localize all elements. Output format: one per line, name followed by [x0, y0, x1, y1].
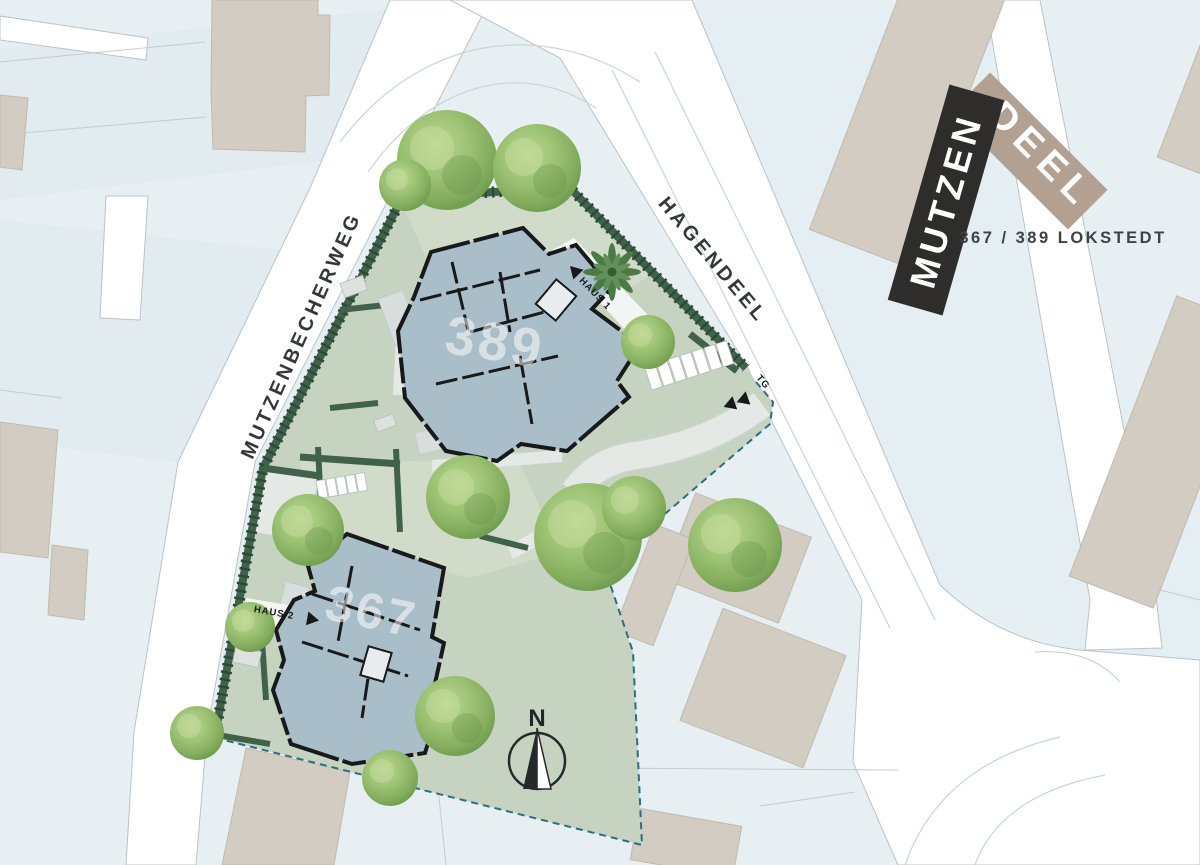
hedge [262, 640, 266, 700]
tree [493, 124, 581, 212]
tree [426, 455, 510, 539]
tree [621, 315, 675, 369]
neighbor-building [0, 422, 58, 558]
tree [602, 476, 666, 540]
tree [688, 498, 782, 592]
logo-subtitle: 367 / 389 LOKSTEDT [959, 229, 1166, 247]
tree [272, 494, 344, 566]
site-plan: 389 367 MUTZE [0, 0, 1200, 865]
tree [415, 676, 495, 756]
tree [170, 706, 224, 760]
tree [379, 159, 431, 211]
site-plan-page: 389 367 MUTZE [0, 0, 1200, 865]
driveway-strip [100, 196, 148, 320]
neighbor-building [48, 545, 88, 620]
tree [362, 750, 418, 806]
